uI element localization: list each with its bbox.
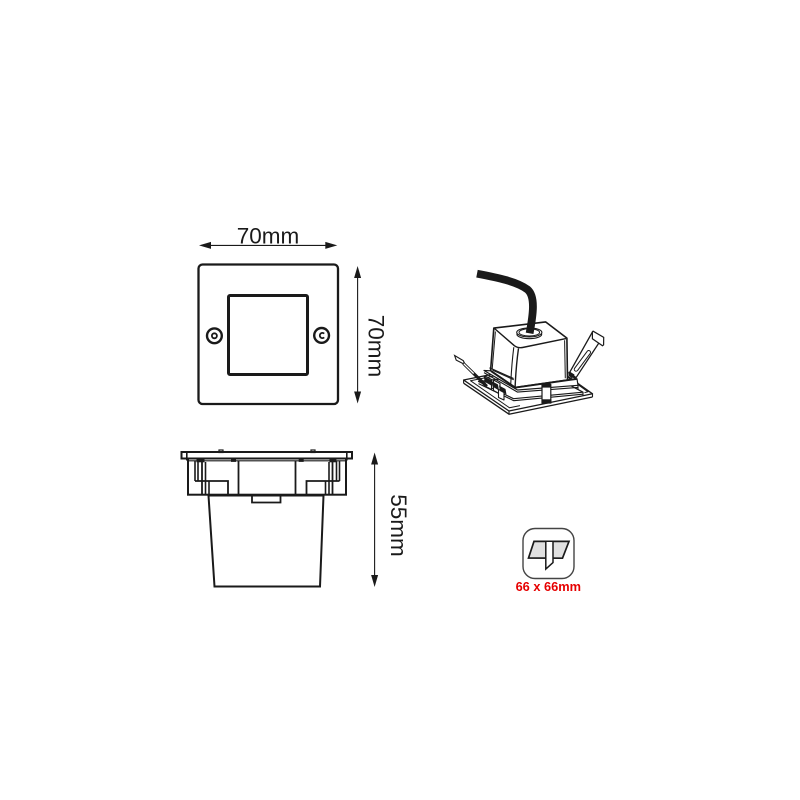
svg-text:55mm: 55mm: [386, 494, 411, 557]
svg-text:70mm: 70mm: [364, 315, 389, 378]
svg-text:66 x 66mm: 66 x 66mm: [516, 579, 581, 594]
svg-text:70mm: 70mm: [237, 224, 300, 249]
